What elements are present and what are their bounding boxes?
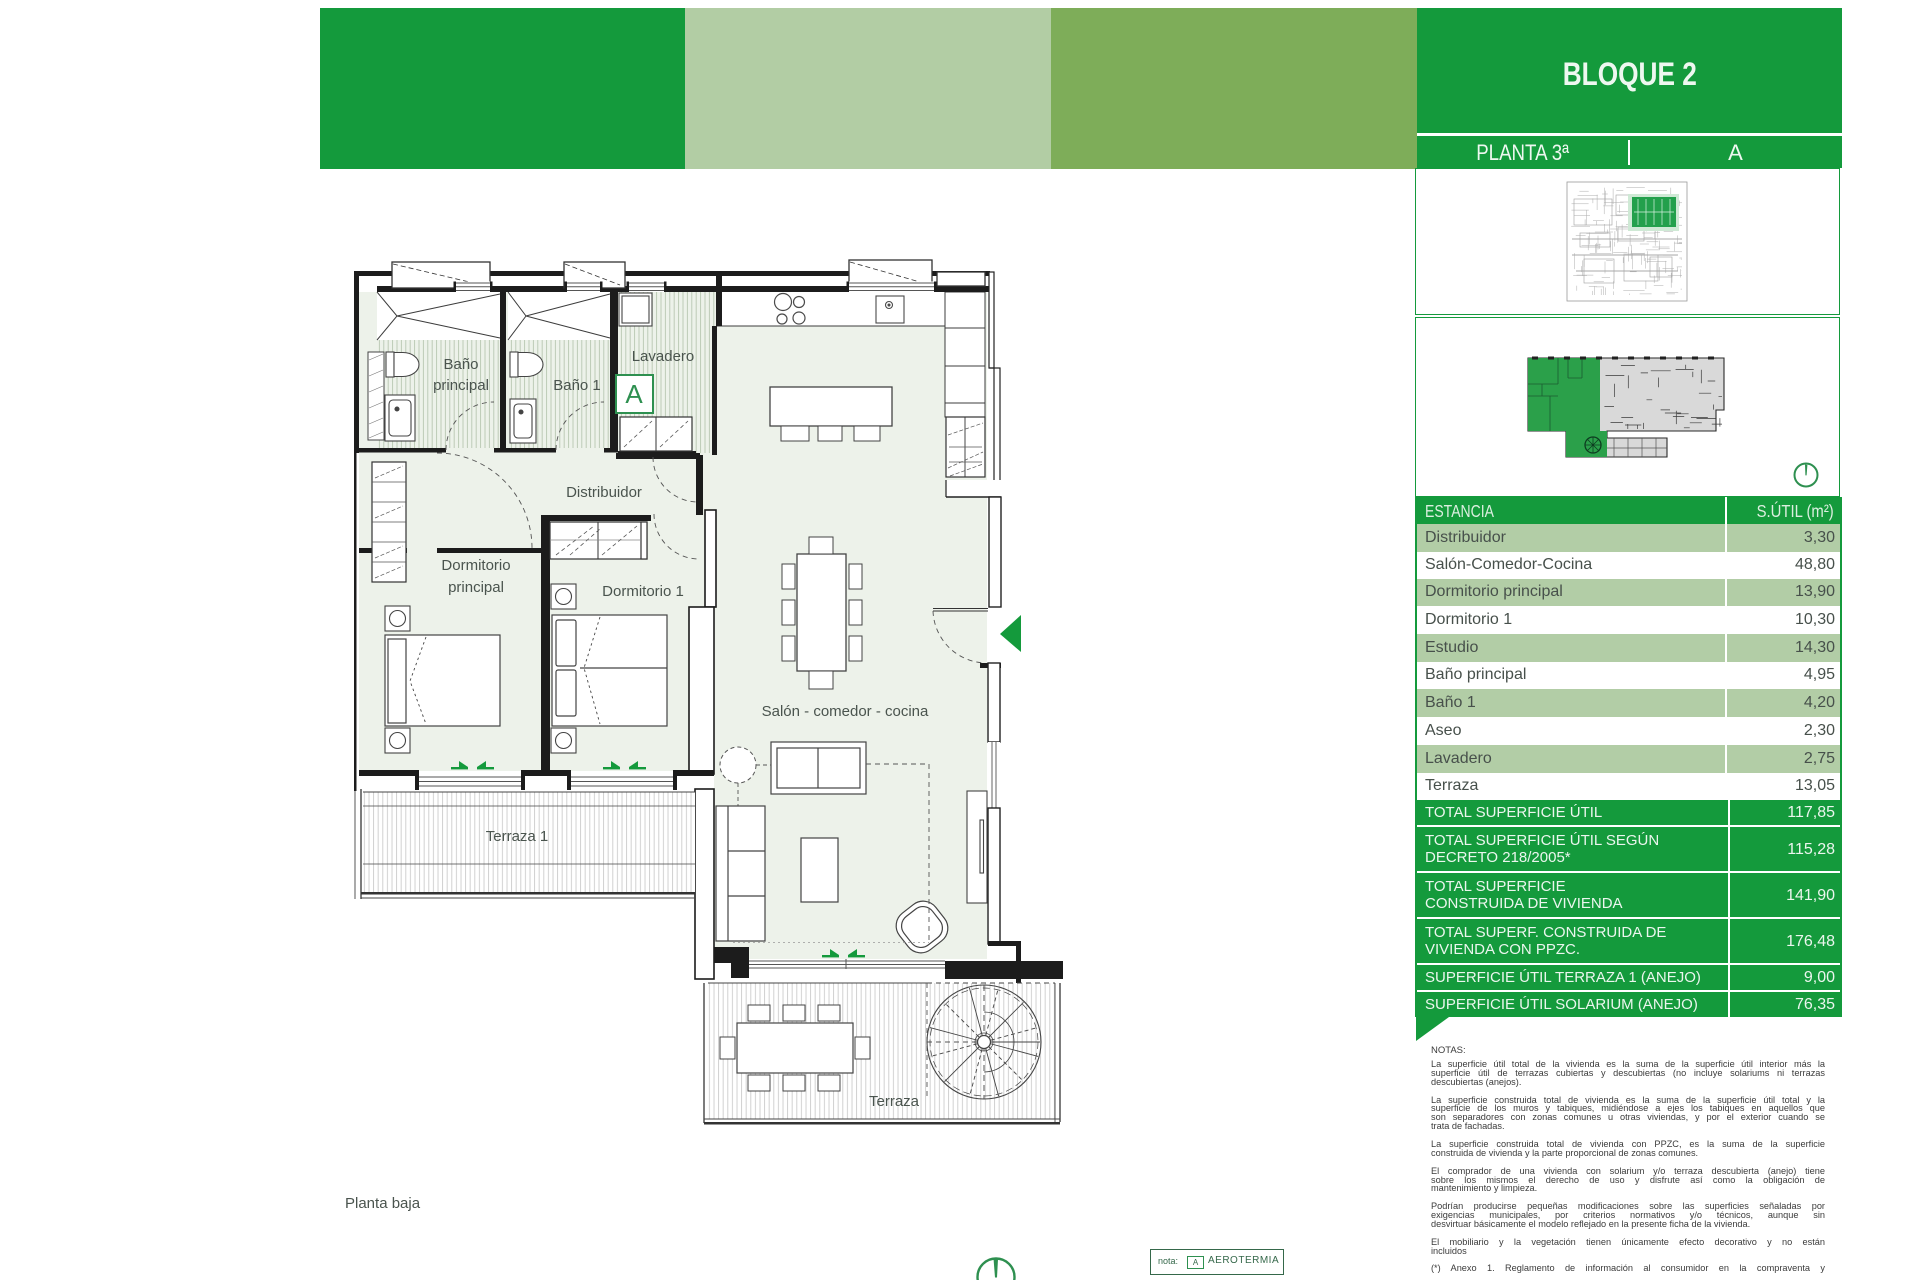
svg-text:principal: principal [448,579,504,596]
svg-text:Salón - comedor - cocina: Salón - comedor - cocina [762,703,929,720]
svg-text:principal: principal [433,377,489,394]
svg-text:Baño 1: Baño 1 [553,377,601,394]
svg-text:Dormitorio 1: Dormitorio 1 [602,583,684,600]
svg-text:Lavadero: Lavadero [632,348,695,365]
svg-text:Terraza: Terraza [869,1093,920,1110]
svg-text:Terraza 1: Terraza 1 [486,828,549,845]
svg-text:Dormitorio: Dormitorio [441,557,510,574]
svg-text:A: A [625,379,643,409]
svg-text:Baño: Baño [443,356,478,373]
svg-text:Distribuidor: Distribuidor [566,484,642,501]
